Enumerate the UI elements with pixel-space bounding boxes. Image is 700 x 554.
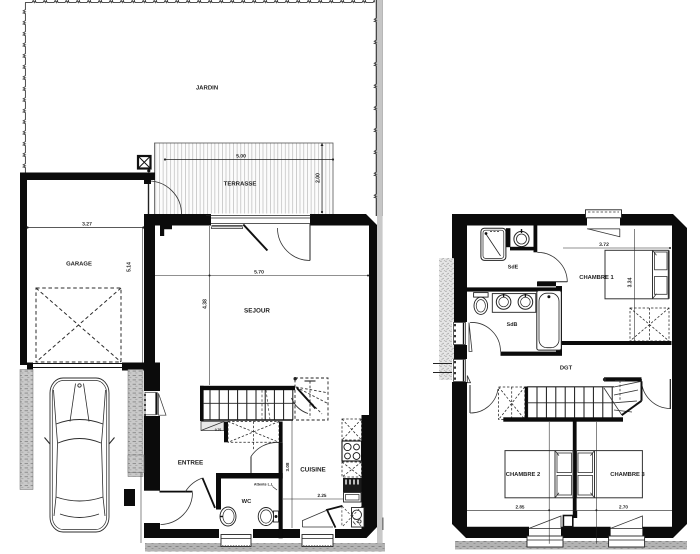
svg-text:5.70: 5.70 [254, 269, 264, 275]
svg-text:4.38: 4.38 [203, 299, 209, 309]
svg-text:JARDIN: JARDIN [196, 85, 218, 91]
svg-text:2.70: 2.70 [619, 504, 628, 509]
svg-text:3.72: 3.72 [599, 242, 609, 248]
svg-text:3.08: 3.08 [285, 462, 290, 471]
svg-text:ENTREE: ENTREE [178, 459, 204, 466]
svg-text:SdB: SdB [507, 322, 518, 328]
svg-text:SdE: SdE [508, 264, 519, 270]
svg-text:CHAMBRE 1: CHAMBRE 1 [579, 275, 614, 281]
svg-text:5.00: 5.00 [236, 153, 246, 159]
svg-text:WC: WC [242, 499, 252, 505]
svg-text:CUISINE: CUISINE [300, 466, 326, 473]
svg-text:GARAGE: GARAGE [66, 261, 92, 267]
svg-text:3.27: 3.27 [82, 221, 92, 227]
svg-text:0.75: 0.75 [215, 428, 222, 432]
svg-text:DGT: DGT [560, 365, 573, 371]
svg-text:2.25: 2.25 [318, 493, 327, 498]
svg-text:TERRASSE: TERRASSE [224, 181, 257, 187]
svg-text:CHAMBRE 2: CHAMBRE 2 [506, 472, 540, 478]
svg-text:2.85: 2.85 [516, 504, 525, 509]
svg-text:2.00: 2.00 [316, 173, 322, 183]
svg-text:CHAMBRE 3: CHAMBRE 3 [610, 472, 645, 478]
svg-text:3.34: 3.34 [628, 277, 634, 287]
svg-text:SEJOUR: SEJOUR [244, 307, 270, 314]
svg-text:Attente L.L: Attente L.L [254, 482, 274, 486]
svg-text:5.14: 5.14 [127, 262, 133, 272]
